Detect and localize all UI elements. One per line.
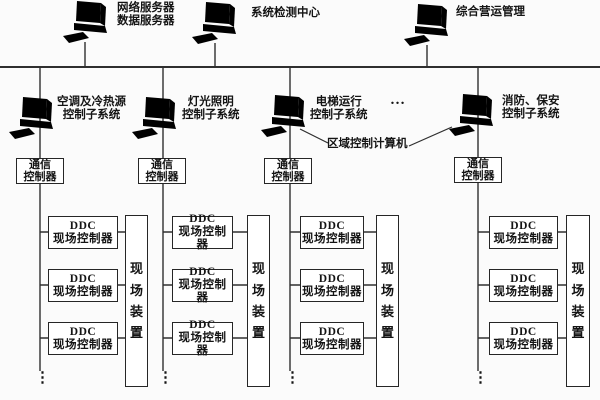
comm-controller-box: 通信 控制器: [138, 158, 186, 184]
ddc-label-line2: 现场控制器: [494, 233, 554, 246]
ddc-controller-box: DDC 现场控制器: [48, 216, 118, 249]
computer-icon: [448, 93, 498, 139]
column-4-continuation-dots: ⋮: [473, 371, 488, 385]
ddc-label-line2: 现场控制器: [173, 226, 232, 252]
top-node-2-label-line1: 系统检测中心: [251, 7, 320, 20]
field-device-box: 现场装置: [125, 215, 148, 387]
comm-controller-label-line2: 控制器: [462, 170, 495, 182]
top-node-1-label: 网络服务器 数据服务器: [117, 2, 175, 28]
zone-controller-label: 区域控制计算机: [327, 138, 408, 151]
column-1-continuation-dots: ⋮: [35, 371, 50, 385]
comm-controller-label-line2: 控制器: [24, 171, 57, 183]
subsystem-3-label-line1: 电梯运行: [310, 96, 368, 109]
comm-controller-label-line1: 通信: [29, 159, 51, 171]
field-device-box: 现场装置: [247, 215, 270, 387]
subsystem-1-label: 空调及冷热源 控制子系统: [57, 96, 126, 122]
computer-icon: [191, 1, 241, 47]
column-3-continuation-dots: ⋮: [285, 371, 300, 385]
diagram-canvas: 网络服务器 数据服务器 系统检测中心 综合营运管理 空调及冷热源 控制子系统 灯…: [0, 0, 600, 400]
subsystem-2-label-line1: 灯光照明: [182, 96, 240, 109]
ddc-controller-box: DDC 现场控制器: [489, 216, 558, 249]
subsystem-2-label-line2: 控制子系统: [182, 109, 240, 122]
comm-controller-box: 通信 控制器: [16, 158, 64, 184]
subsystem-4-label-line1: 消防、保安: [502, 95, 560, 108]
subsystem-2-label: 灯光照明 控制子系统: [182, 96, 240, 122]
ddc-label-line2: 现场控制器: [302, 339, 362, 352]
comm-controller-label-line1: 通信: [467, 158, 489, 170]
ddc-controller-box: DDC 现场控制器: [172, 269, 233, 302]
field-device-box: 现场装置: [566, 215, 590, 387]
ddc-label-line1: DDC: [319, 326, 345, 339]
field-device-label: 现场装置: [381, 258, 395, 344]
comm-controller-box: 通信 控制器: [454, 157, 502, 183]
ddc-controller-box: DDC 现场控制器: [172, 322, 233, 355]
ddc-label-line1: DDC: [510, 220, 536, 233]
subsystem-1-label-line1: 空调及冷热源: [57, 96, 126, 109]
top-node-2-label: 系统检测中心: [251, 7, 320, 20]
ddc-label-line1: DDC: [189, 319, 215, 332]
ddc-label-line1: DDC: [319, 273, 345, 286]
computer-icon: [260, 94, 310, 140]
ddc-label-line1: DDC: [189, 213, 215, 226]
ddc-label-line1: DDC: [70, 326, 96, 339]
comm-controller-box: 通信 控制器: [264, 158, 312, 184]
comm-controller-label-line1: 通信: [277, 159, 299, 171]
ddc-label-line1: DDC: [70, 273, 96, 286]
computer-icon: [62, 0, 112, 46]
subsystem-1-label-line2: 控制子系统: [57, 109, 126, 122]
ddc-label-line1: DDC: [189, 266, 215, 279]
comm-controller-label-line2: 控制器: [272, 171, 305, 183]
top-node-3-label-line1: 综合营运管理: [456, 6, 525, 19]
ddc-controller-box: DDC 现场控制器: [48, 269, 118, 302]
comm-controller-label-line2: 控制器: [146, 171, 179, 183]
ddc-label-line1: DDC: [510, 273, 536, 286]
ddc-controller-box: DDC 现场控制器: [489, 322, 558, 355]
top-node-1-label-line1: 网络服务器: [117, 2, 175, 15]
ddc-label-line2: 现场控制器: [494, 339, 554, 352]
field-device-label: 现场装置: [571, 258, 585, 344]
computer-icon: [8, 96, 58, 142]
ddc-label-line1: DDC: [510, 326, 536, 339]
ddc-controller-box: DDC 现场控制器: [300, 269, 364, 302]
ddc-controller-box: DDC 现场控制器: [48, 322, 118, 355]
ddc-label-line2: 现场控制器: [302, 286, 362, 299]
field-device-label: 现场装置: [130, 258, 144, 344]
computer-icon: [131, 96, 181, 142]
field-device-box: 现场装置: [376, 215, 399, 387]
comm-controller-label-line1: 通信: [151, 159, 173, 171]
ddc-controller-box: DDC 现场控制器: [300, 216, 364, 249]
ddc-label-line2: 现场控制器: [53, 233, 113, 246]
subsystem-4-label-line2: 控制子系统: [502, 108, 560, 121]
column-2-continuation-dots: ⋮: [158, 371, 173, 385]
top-node-1-label-line2: 数据服务器: [117, 15, 175, 28]
ddc-controller-box: DDC 现场控制器: [489, 269, 558, 302]
subsystem-3-label-line2: 控制子系统: [310, 109, 368, 122]
ddc-label-line1: DDC: [70, 220, 96, 233]
more-subsystems-ellipsis: …: [390, 92, 407, 109]
field-device-label: 现场装置: [252, 258, 266, 344]
computer-icon: [403, 3, 453, 49]
ddc-controller-box: DDC 现场控制器: [300, 322, 364, 355]
subsystem-4-label: 消防、保安 控制子系统: [502, 95, 560, 121]
ddc-label-line2: 现场控制器: [302, 233, 362, 246]
ddc-label-line2: 现场控制器: [494, 286, 554, 299]
ddc-label-line2: 现场控制器: [173, 279, 232, 305]
subsystem-3-label: 电梯运行 控制子系统: [310, 96, 368, 122]
ddc-label-line2: 现场控制器: [53, 339, 113, 352]
ddc-label-line2: 现场控制器: [173, 332, 232, 358]
top-node-3-label: 综合营运管理: [456, 6, 525, 19]
ddc-label-line1: DDC: [319, 220, 345, 233]
zone-pointer-right-line: [409, 127, 452, 146]
ddc-controller-box: DDC 现场控制器: [172, 216, 233, 249]
ddc-label-line2: 现场控制器: [53, 286, 113, 299]
